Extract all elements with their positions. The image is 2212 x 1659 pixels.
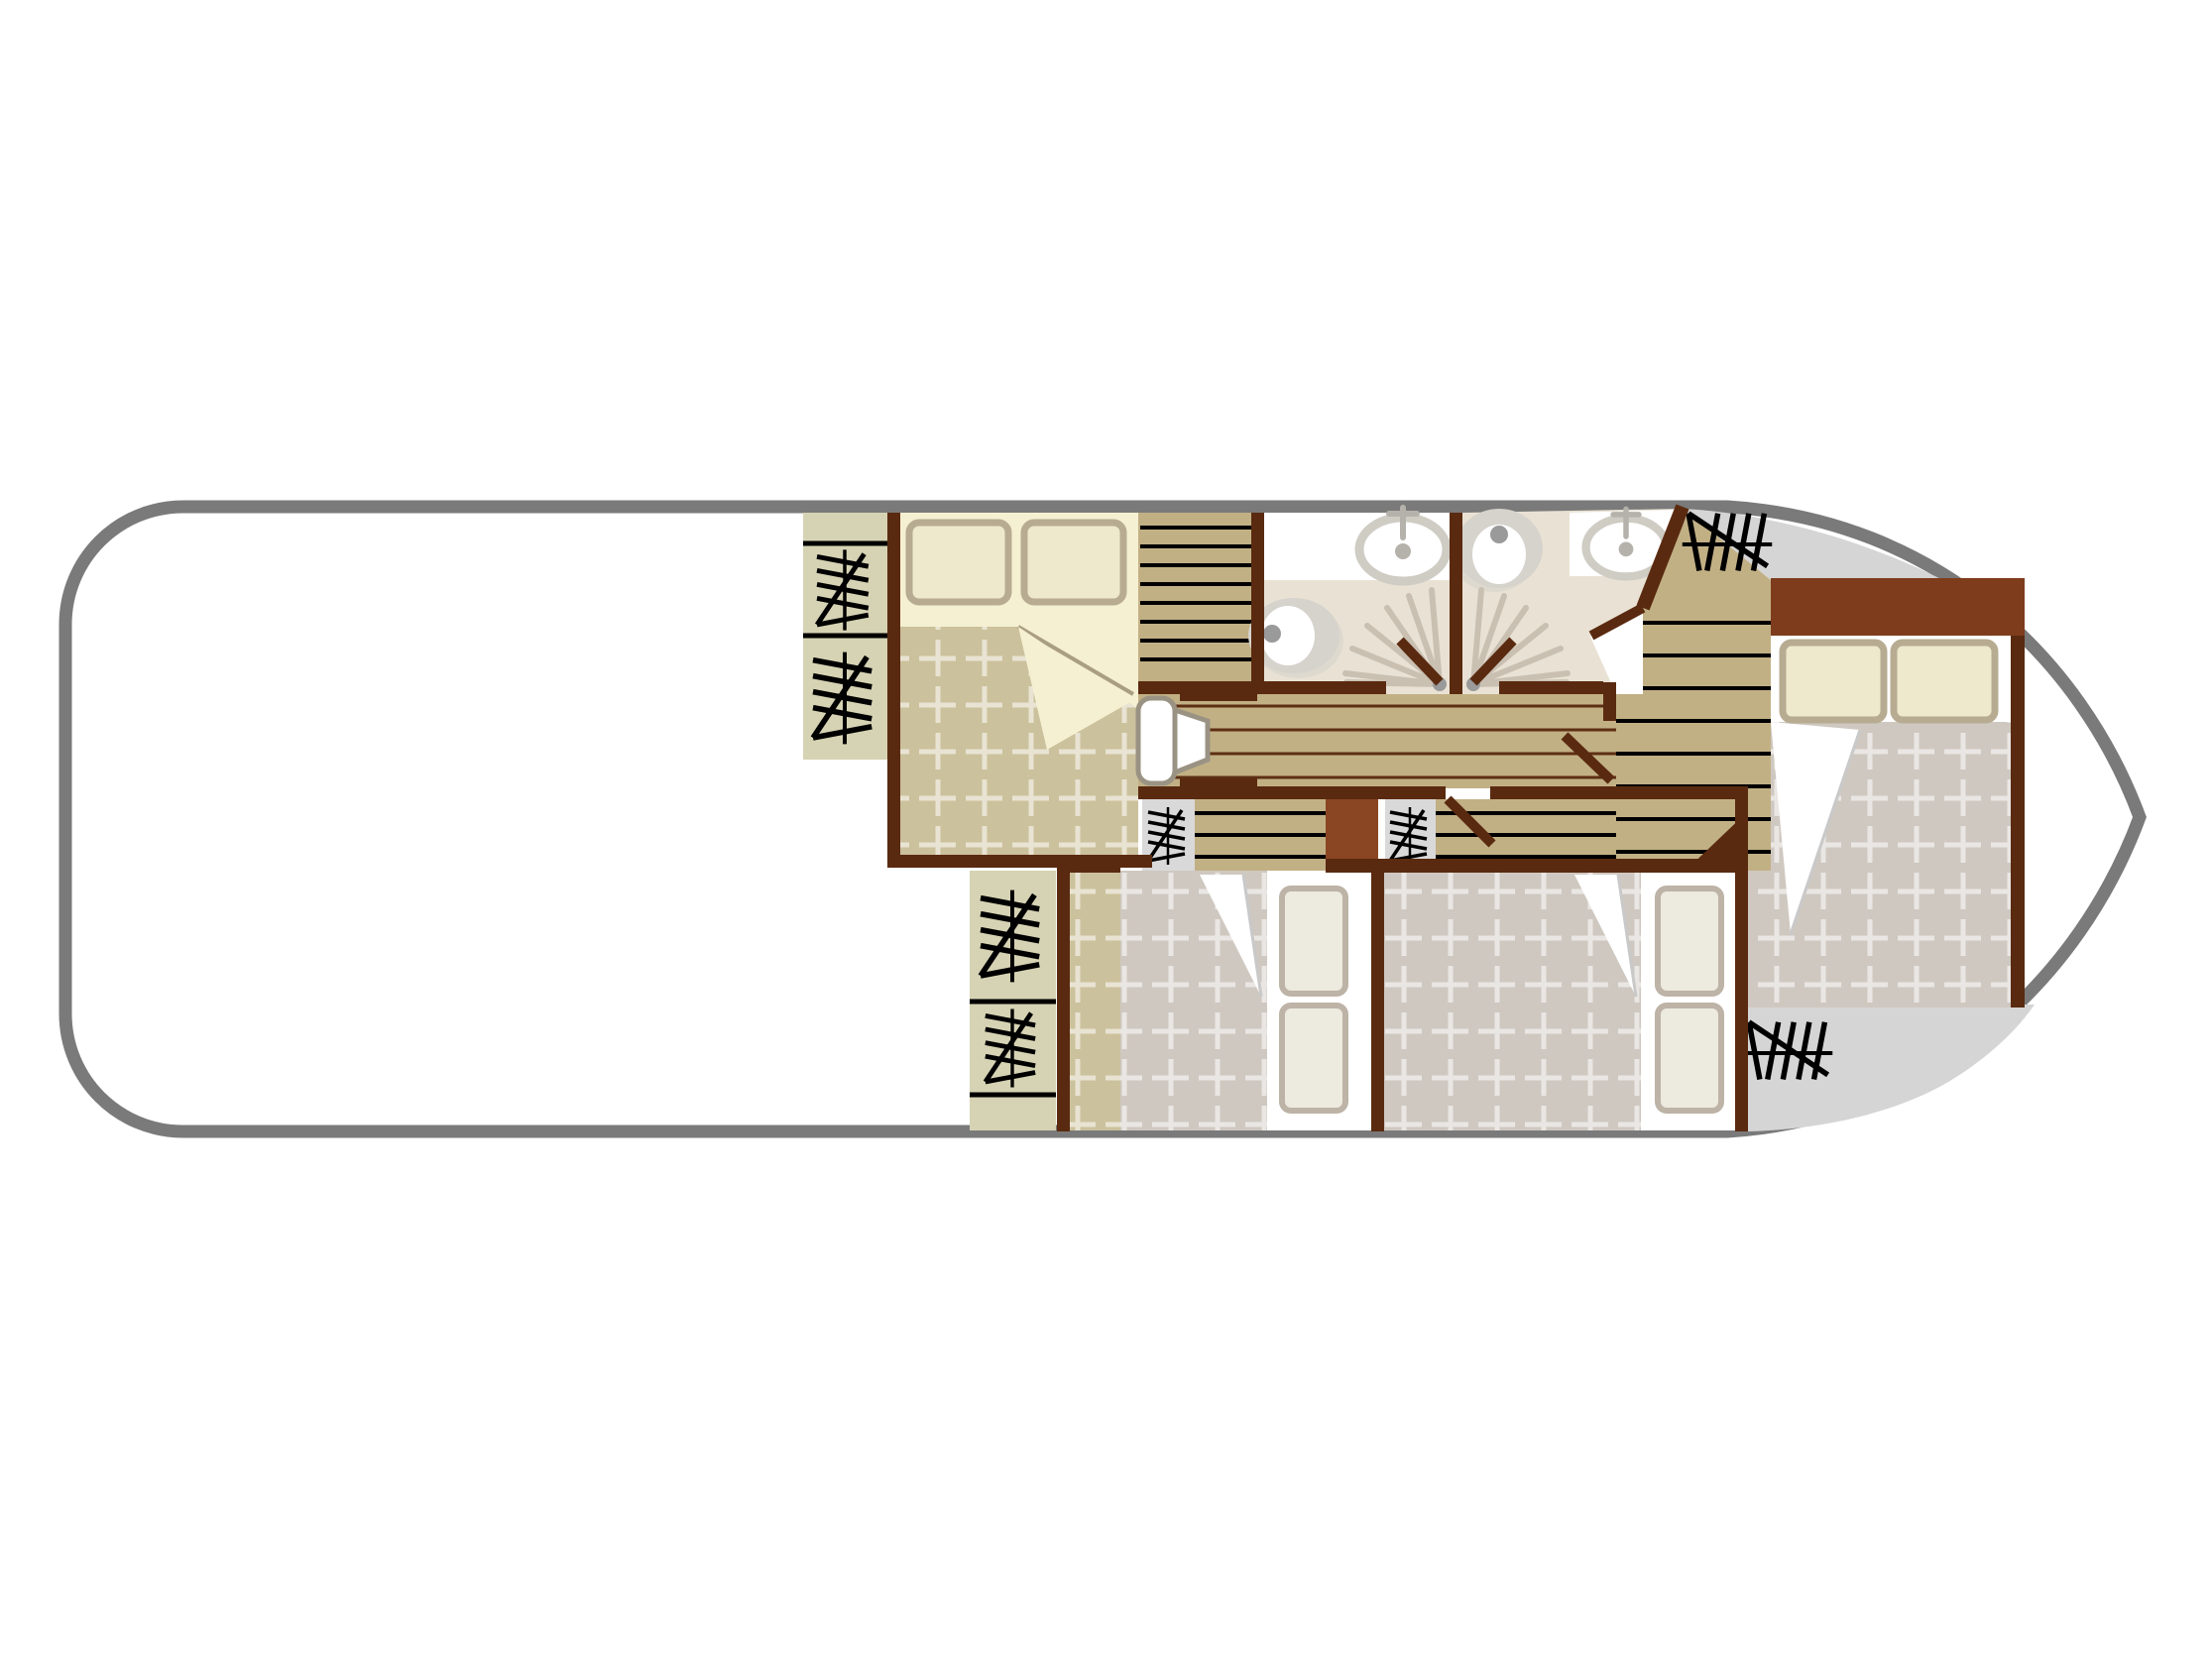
- bow-headboard-block: [1771, 578, 2025, 636]
- wardrobe-strip-bottom-left: [970, 871, 1056, 1130]
- pillow: [909, 523, 1008, 602]
- pillow: [1024, 523, 1123, 602]
- floor-plan-svg: [0, 0, 2212, 1659]
- pillow: [1282, 889, 1345, 994]
- pillow: [1658, 1006, 1721, 1111]
- pillow: [1282, 1006, 1345, 1111]
- pillow: [1894, 643, 1995, 720]
- aft-cabin-left-bed: [1070, 871, 1371, 1130]
- aft-cabin-right-bed: [1384, 871, 1735, 1130]
- pillow: [1783, 643, 1884, 720]
- bow-cabin-bed: [1748, 635, 2011, 1007]
- companionway-steps: [1138, 513, 1251, 682]
- owner-cabin-bed: [900, 513, 1138, 855]
- wardrobe-strip-top-left: [803, 513, 887, 760]
- floor-plan-stage: [0, 0, 2212, 1659]
- pillow: [1658, 889, 1721, 994]
